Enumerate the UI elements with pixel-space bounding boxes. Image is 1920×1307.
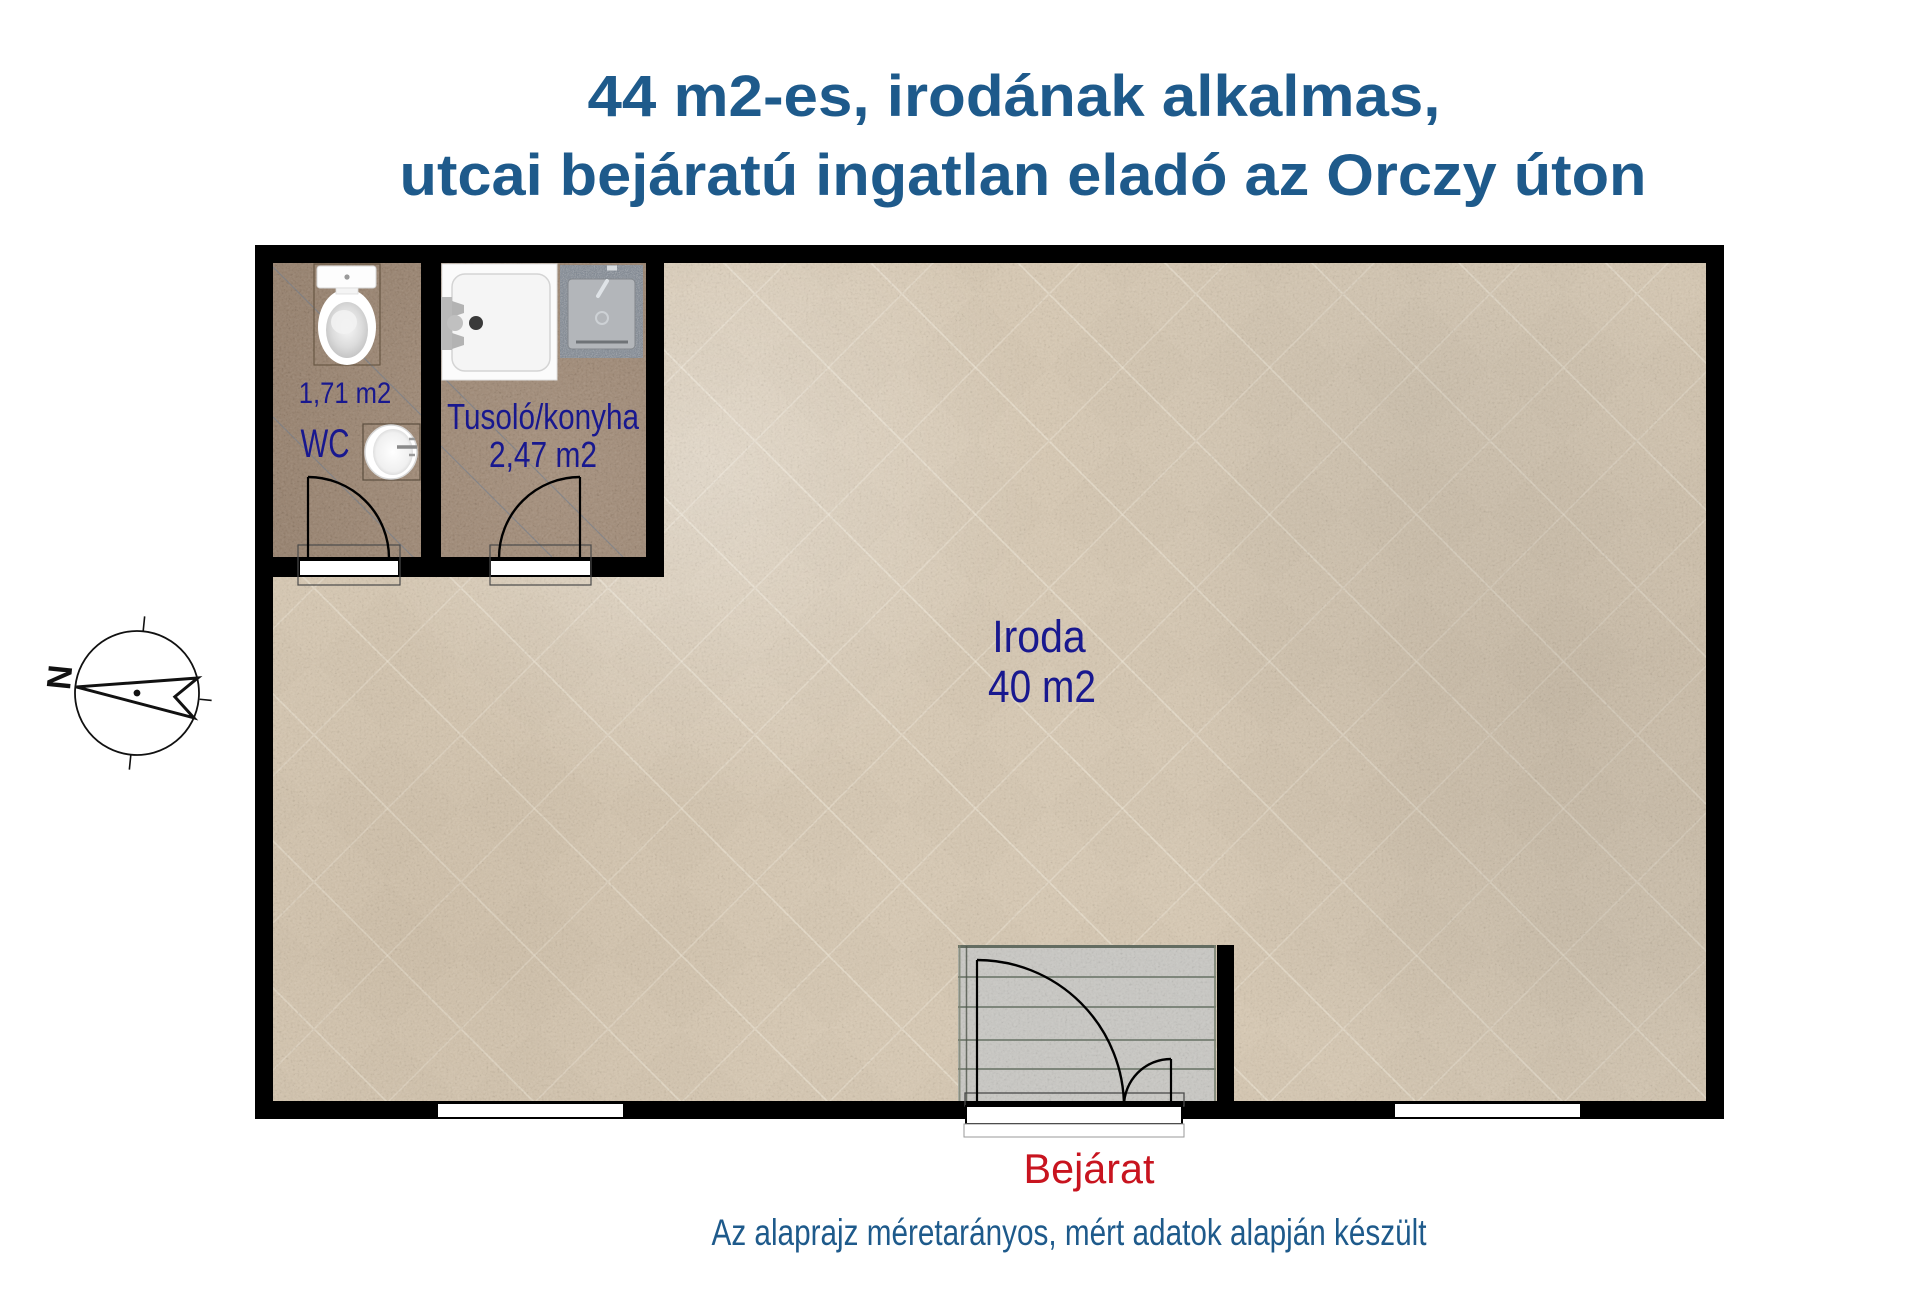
svg-text:Tusoló/konyha: Tusoló/konyha: [447, 396, 640, 437]
svg-text:1,71 m2: 1,71 m2: [299, 377, 392, 410]
svg-text:Az alaprajz méretarányos, mért: Az alaprajz méretarányos, mért adatok al…: [712, 1212, 1428, 1253]
svg-text:40 m2: 40 m2: [988, 661, 1096, 712]
svg-text:utcai bejáratú ingatlan eladó: utcai bejáratú ingatlan eladó az Orczy ú…: [400, 143, 1647, 208]
svg-text:Bejárat: Bejárat: [1024, 1145, 1155, 1192]
svg-text:2,47 m2: 2,47 m2: [489, 434, 597, 475]
svg-text:N: N: [40, 663, 80, 691]
svg-text:44 m2-es, irodának alkalmas,: 44 m2-es, irodának alkalmas,: [588, 64, 1441, 129]
svg-text:WC: WC: [301, 422, 350, 466]
svg-text:Iroda: Iroda: [992, 611, 1086, 662]
